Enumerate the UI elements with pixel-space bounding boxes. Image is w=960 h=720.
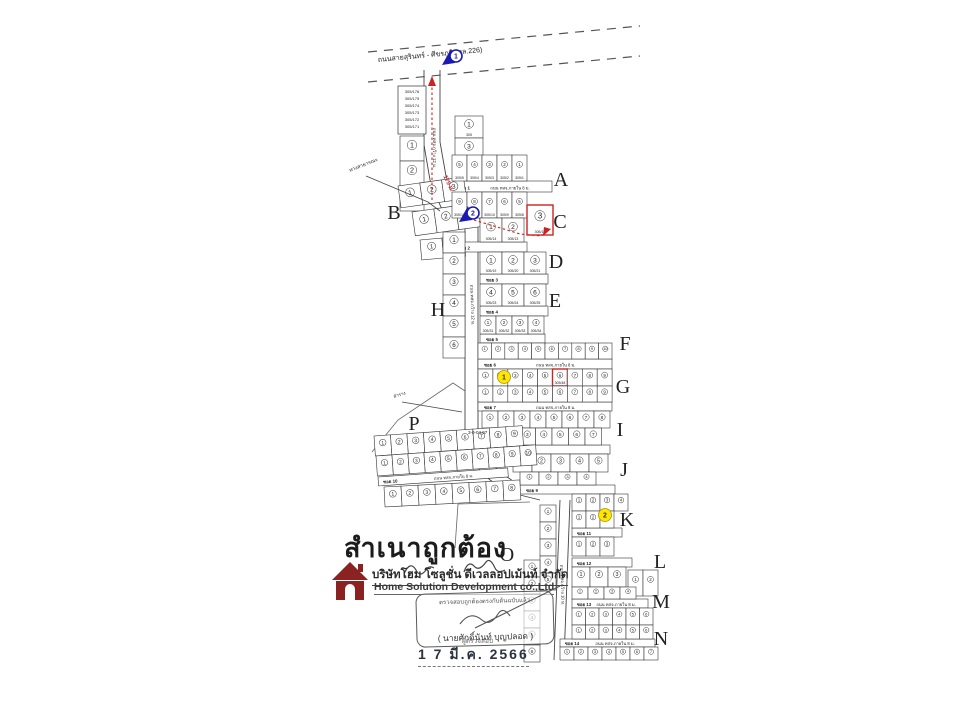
soi-label: ซอย 4 bbox=[486, 310, 498, 315]
plot-index: 3 bbox=[547, 543, 550, 549]
plot-index: 1 bbox=[579, 590, 581, 594]
plot-index: 7 bbox=[493, 486, 496, 492]
section-letter-B: B bbox=[387, 202, 400, 224]
soi-label: ซอย 14 bbox=[565, 641, 580, 646]
plot-index: 3 bbox=[425, 490, 428, 496]
plot-index: 3 bbox=[533, 257, 537, 264]
plot-index: 2 bbox=[547, 474, 549, 479]
plot-block: 123456789 bbox=[478, 386, 612, 402]
soi-strip: ซอย 14ถนน ทสจ.ภายใน 8 ม. bbox=[560, 639, 655, 647]
stamp-signature-flourish bbox=[420, 580, 570, 640]
soi-strip: ซอย 5 bbox=[480, 334, 545, 343]
plot-block: 123456 bbox=[572, 608, 653, 625]
plot-index: 2 bbox=[410, 166, 414, 175]
plot-block: 123456 bbox=[572, 625, 653, 639]
plot-number: 305/172 bbox=[405, 117, 420, 122]
plot-index: 2 bbox=[511, 224, 515, 231]
marker-number: 2 bbox=[603, 512, 607, 519]
plot-block: 123456 bbox=[443, 232, 465, 358]
plot-index: 6 bbox=[636, 649, 638, 654]
plot-index: 2 bbox=[511, 257, 515, 264]
road-width-label: ถนน ทสจ.ภายใน 8 ม. bbox=[536, 404, 575, 410]
plot-index: 4 bbox=[489, 289, 493, 296]
plot-index: 8 bbox=[510, 485, 513, 491]
plot-index: 5 bbox=[452, 321, 456, 328]
document-page: ถนนสายสุรินทร์ - ศีขรภูมิ (ทล.226)ซอย 1ถ… bbox=[0, 0, 960, 720]
road-width-label: ถนน ทสจ.ภายใน 8 ม. bbox=[595, 640, 634, 646]
plot-block: 4305/235305/246305/25 bbox=[480, 284, 546, 306]
plot-index: 1 bbox=[391, 492, 394, 498]
section-letter-D: D bbox=[549, 251, 563, 273]
section-letter-N: N bbox=[654, 628, 668, 650]
plot-number: 305/8 bbox=[515, 213, 524, 217]
plot-block: 1234567 bbox=[560, 647, 658, 660]
plot-index: 4 bbox=[627, 590, 629, 594]
plot-number: 305/174 bbox=[405, 103, 420, 108]
plot-block: 9305/128305/117305/106305/95305/8 bbox=[452, 192, 527, 218]
plot-number: 305/33 bbox=[515, 329, 526, 333]
plot-index: 5 bbox=[553, 415, 556, 421]
plot-index: 7 bbox=[650, 649, 652, 654]
soi-strip: ซอย 4 bbox=[480, 306, 548, 316]
section-letter-J: J bbox=[620, 459, 628, 481]
plot-index: 2 bbox=[540, 458, 543, 464]
plot-index: 3 bbox=[521, 415, 524, 421]
yellow-circle-marker: 2 bbox=[599, 509, 612, 522]
plot-number: 305/2 bbox=[500, 176, 509, 180]
soi-strip: ซอย 6ถนน ทสจ.ภายใน 8 ม. bbox=[478, 359, 612, 369]
plot-index: 2 bbox=[598, 572, 601, 578]
plot-index: 4 bbox=[578, 458, 581, 464]
soi-strip: ซอย 11 bbox=[572, 528, 622, 537]
section-letter-E: E bbox=[549, 290, 561, 312]
plot-index: 2 bbox=[595, 590, 597, 594]
plot-index: 2 bbox=[505, 415, 508, 421]
plot-number: 305/20 bbox=[508, 269, 519, 273]
plot-index: 4 bbox=[547, 560, 550, 566]
date-stamp: 1 7 มี.ค. 2566 bbox=[418, 644, 529, 667]
soi-label: ซอย 3 bbox=[486, 278, 498, 283]
plot-index: 6 bbox=[533, 289, 537, 296]
plot-index: 1 bbox=[547, 509, 550, 515]
plot-number: 305/171 bbox=[405, 124, 420, 129]
yellow-circle-marker: 1 bbox=[498, 371, 511, 384]
plot-index: 3 bbox=[452, 279, 456, 286]
plot-block: 123 bbox=[572, 567, 626, 587]
plot-index: 2 bbox=[580, 649, 582, 654]
road-width-label: ถนน ทสจ.ภายใน 8 ม. bbox=[596, 601, 635, 607]
plot-number: 305/9 bbox=[500, 213, 509, 217]
plot-block: 12345678 bbox=[482, 411, 610, 428]
plot-index: 3 bbox=[566, 474, 568, 479]
road-name-vertical: ถนน ทสจ.กว้าง 12 ม. bbox=[469, 285, 475, 326]
soi-label: ซอย 5 bbox=[486, 337, 498, 342]
soi-label: ซอย 6 bbox=[484, 363, 496, 368]
section-letter-H: H bbox=[431, 299, 445, 321]
plot-number: 305/34 bbox=[531, 329, 542, 333]
plot-index: 4 bbox=[537, 415, 540, 421]
plot-number: 305/10 bbox=[484, 213, 495, 217]
plot-index: 4 bbox=[542, 432, 545, 438]
plot-index: 2 bbox=[503, 320, 506, 326]
flag-number: 1 bbox=[454, 53, 458, 60]
soi-label: ซอย 13 bbox=[577, 602, 592, 607]
plot-index: 6 bbox=[476, 487, 479, 493]
plot-index: 10 bbox=[603, 346, 608, 351]
plot-block: 5305/54305/43305/32305/21305/1 bbox=[452, 155, 527, 181]
plot-index: 1 bbox=[489, 257, 493, 264]
soi-label: ซอย 10 bbox=[383, 478, 398, 484]
plot-index: 4 bbox=[442, 489, 445, 495]
route-arrowhead bbox=[428, 76, 436, 86]
soi-strip: ซอย 13ถนน ทสจ.ภายใน 8 ม. bbox=[572, 599, 648, 608]
plot-number: 305/32 bbox=[499, 329, 510, 333]
plot-index: 3 bbox=[611, 590, 613, 594]
plot-number: 305/31 bbox=[483, 329, 494, 333]
plot-index: 2 bbox=[547, 526, 550, 532]
road-name-vertical: ถนน ทสจ.กว้าง 12 ม. bbox=[432, 128, 437, 168]
highway-dashed-line bbox=[368, 26, 640, 52]
plot-index: 6 bbox=[575, 432, 578, 438]
flag-number: 2 bbox=[471, 210, 475, 217]
plot-number: 305/13 bbox=[508, 237, 519, 241]
plot-number: 305/1 bbox=[515, 176, 524, 180]
plot-index: 6 bbox=[531, 649, 534, 655]
plot-number: 305/173 bbox=[405, 110, 420, 115]
soi-strip: ซอย 12 bbox=[572, 558, 632, 567]
section-letter-C: C bbox=[553, 211, 566, 233]
plot-index: 5 bbox=[622, 649, 624, 654]
home-solution-logo bbox=[330, 560, 370, 604]
plot-number: 305/175 bbox=[405, 96, 420, 101]
area-label: ลำราง bbox=[392, 389, 406, 399]
highway: ถนนสายสุรินทร์ - ศีขรภูมิ (ทล.226) bbox=[368, 26, 640, 82]
plot-block: 13053305/1 bbox=[455, 116, 483, 160]
plot-index: 3 bbox=[538, 212, 542, 221]
section-letter-L: L bbox=[654, 551, 666, 573]
soi-strip: ซอย 1ถนน ทสจ.ภายใน 8 ม. bbox=[452, 181, 552, 192]
plot-index: 7 bbox=[585, 415, 588, 421]
plot-index: 10 bbox=[525, 450, 531, 456]
plot-index: 1 bbox=[489, 415, 492, 421]
plot-number: 305/176 bbox=[405, 89, 420, 94]
soi-label: ซอย 12 bbox=[577, 561, 592, 566]
stack-plot: 305/176305/175305/174305/173305/172305/1… bbox=[398, 86, 426, 134]
plot-index: 1 bbox=[528, 474, 530, 479]
plot-index: 5 bbox=[511, 289, 515, 296]
plot-index: 1 bbox=[467, 121, 471, 128]
plot-index: 5 bbox=[597, 458, 600, 464]
road-width-label: ถนน ทสจ.ภายใน 8 ม. bbox=[536, 362, 575, 368]
plot-index: 4 bbox=[452, 300, 456, 307]
soi-strip: ซอย 9 bbox=[520, 485, 615, 494]
plot-index: 1 bbox=[566, 649, 568, 654]
plot-index: 1 bbox=[410, 141, 414, 150]
section-letter-G: G bbox=[616, 376, 630, 398]
soi-label: ซอย 7 bbox=[484, 405, 496, 410]
plot-index: 3 bbox=[467, 143, 471, 150]
plot-index: 3 bbox=[594, 649, 596, 654]
plot-index: 3 bbox=[616, 572, 619, 578]
section-letter-F: F bbox=[619, 333, 630, 355]
plot-number: 305/4 bbox=[470, 176, 479, 180]
plot-index: 3 bbox=[526, 432, 529, 438]
plot-block: 1305/142305/13 bbox=[480, 218, 524, 242]
plot-index: 2 bbox=[452, 258, 456, 265]
area-label: 3-0-04.97 bbox=[468, 430, 488, 435]
plot-block: 123 bbox=[572, 537, 614, 556]
area-label: ทางสาธารณะ bbox=[349, 157, 380, 174]
plot-number: 305/23 bbox=[486, 301, 497, 305]
plot-index: 5 bbox=[559, 432, 562, 438]
plot-block: 1305/312305/323305/334305/34 bbox=[480, 316, 544, 334]
plot-number: 305/24 bbox=[508, 301, 519, 305]
plot-number: 305/48 bbox=[555, 381, 566, 385]
plot-index: 2 bbox=[408, 491, 411, 497]
plot-index: 1 bbox=[452, 237, 456, 244]
road-width-label: ถนน ทสจ.ภายใน 8 ม. bbox=[490, 184, 529, 190]
plot-number: 305/14 bbox=[486, 237, 497, 241]
plot-number: 305/21 bbox=[530, 269, 541, 273]
section-letter-A: A bbox=[554, 169, 569, 191]
plot-block: 1234 bbox=[572, 587, 636, 599]
plot-block: 1305/192305/203305/21 bbox=[480, 252, 546, 274]
plot-number: 305/5 bbox=[455, 176, 464, 180]
plot-index: 4 bbox=[535, 320, 538, 326]
soi-label: ซอย 9 bbox=[526, 488, 538, 493]
plot-number: 305/3 bbox=[485, 176, 494, 180]
plot-index: 3 bbox=[559, 458, 562, 464]
plot-index: 3 bbox=[519, 320, 522, 326]
plot-index: 6 bbox=[452, 342, 456, 349]
leader-line bbox=[402, 402, 462, 412]
plot-block: 1234 bbox=[520, 472, 596, 485]
plot-block: 12345678910 bbox=[478, 343, 612, 359]
plot-index: 8 bbox=[601, 415, 604, 421]
soi-strip: ซอย 3 bbox=[480, 274, 548, 284]
plot-index: 7 bbox=[592, 432, 595, 438]
plot-index: 5 bbox=[459, 488, 462, 494]
section-letter-I: I bbox=[617, 419, 624, 441]
plot-index: 1 bbox=[487, 320, 490, 326]
plot-index: 1 bbox=[580, 572, 583, 578]
soi-strip: ซอย 7ถนน ทสจ.ภายใน 8 ม. bbox=[478, 402, 612, 411]
plot-number: 305/25 bbox=[530, 301, 541, 305]
plot-index: 6 bbox=[569, 415, 572, 421]
plot-number: 305/19 bbox=[486, 269, 497, 273]
section-letter-K: K bbox=[620, 509, 635, 531]
plot-number: 305 bbox=[466, 133, 472, 137]
highway-label: ถนนสายสุรินทร์ - ศีขรภูมิ (ทล.226) bbox=[377, 46, 482, 64]
section-letter-M: M bbox=[652, 591, 670, 613]
soi-label: ซอย 11 bbox=[577, 531, 592, 536]
marker-number: 1 bbox=[502, 374, 506, 381]
section-letter-P: P bbox=[408, 413, 419, 435]
